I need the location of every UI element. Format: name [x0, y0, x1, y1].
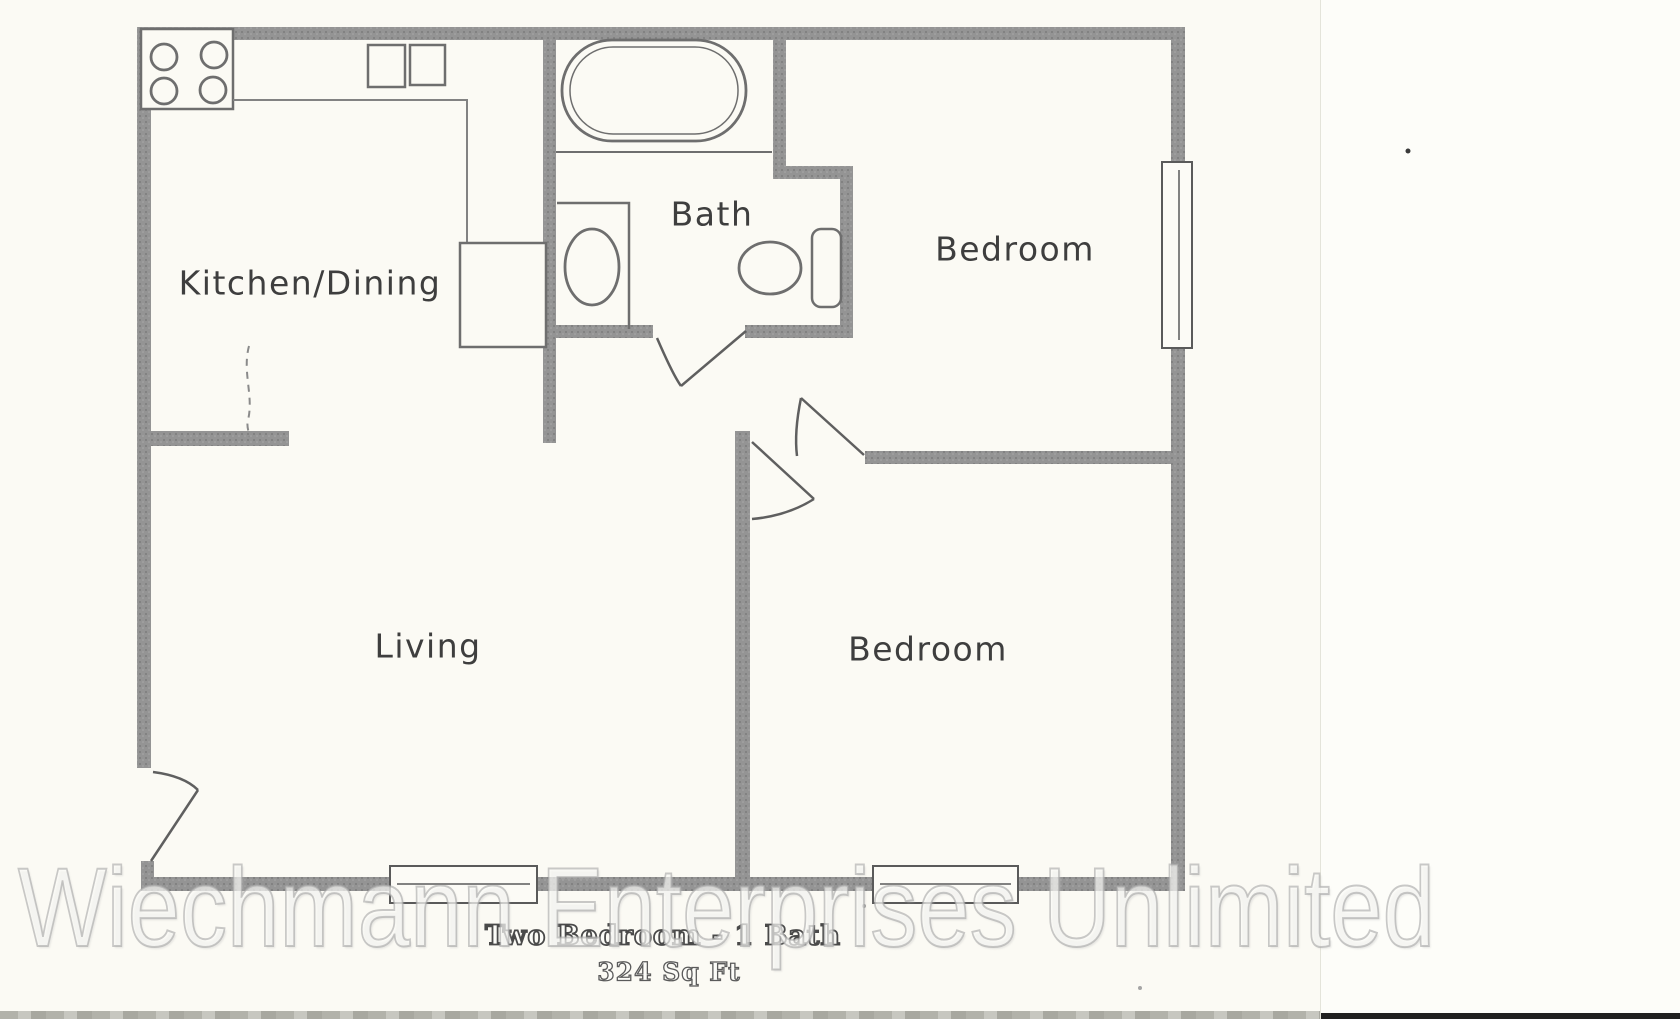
- scan-speck: [1138, 986, 1142, 990]
- scan-edge-band-right: [1321, 1013, 1680, 1019]
- bath-door: [657, 331, 746, 386]
- refrigerator-icon: [460, 243, 546, 347]
- kitchen-counter-line: [233, 100, 467, 243]
- room-label-kitchen-dining: Kitchen/Dining: [179, 264, 442, 303]
- scan-speck: [1406, 149, 1411, 154]
- room-label-bath: Bath: [671, 195, 754, 234]
- vanity-sink-icon: [557, 203, 629, 329]
- wall-bedroom1-bottom: [865, 451, 1185, 464]
- scan-edge-band-left: [0, 1011, 1320, 1019]
- room-label-bedroom-1: Bedroom: [935, 230, 1095, 269]
- kitchen-sink-icon: [368, 45, 445, 87]
- wall-bedroom2-left: [735, 431, 750, 877]
- wall-bath-bedroom1-upper: [773, 38, 786, 172]
- wall-kitchen-living-stub: [137, 431, 289, 446]
- toilet-icon: [739, 229, 841, 307]
- wall-top: [137, 27, 1185, 40]
- scanned-floor-plan-page: Kitchen/Dining Bath Bedroom Living Bedro…: [0, 0, 1680, 1019]
- window-right-wall: [1162, 162, 1192, 348]
- bathtub-icon: [562, 40, 746, 141]
- room-label-bedroom-2: Bedroom: [848, 630, 1008, 669]
- wall-kitchen-bath-divider: [543, 27, 556, 443]
- pencil-mark-artifact: [247, 346, 250, 437]
- wall-left: [137, 27, 151, 768]
- bedroom-2-door: [752, 442, 814, 519]
- stove-icon: [141, 29, 233, 109]
- room-label-living: Living: [374, 627, 481, 666]
- watermark-text: Wiechmann Enterprises Unlimited: [18, 843, 1435, 972]
- bedroom-1-door: [796, 398, 864, 456]
- wall-bath-bottom-left: [543, 325, 653, 338]
- wall-bath-bottom-right: [745, 325, 853, 338]
